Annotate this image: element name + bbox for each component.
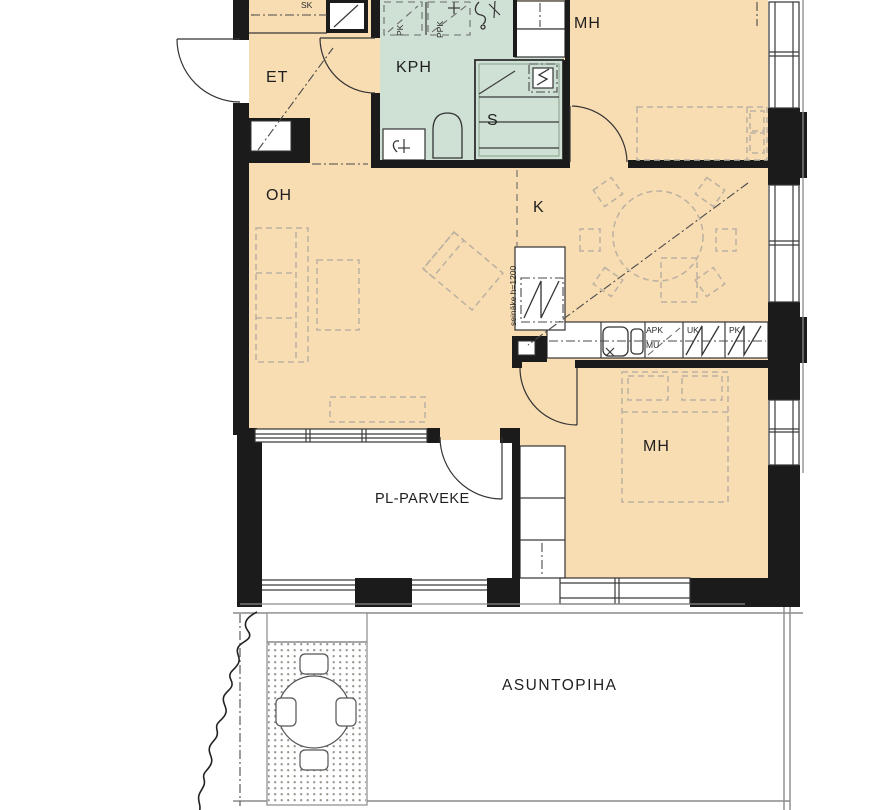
bedroom2-side-window	[769, 400, 799, 465]
room-label-living: OH	[266, 187, 292, 204]
patio-chair-south	[300, 750, 328, 770]
patio-chair-east	[336, 698, 356, 726]
label-partition-note: seinäke h=1200	[508, 265, 518, 326]
living-balcony-window	[255, 429, 427, 442]
floor-plan-drawing: ET KPH S MH OH K MH PL-PARVEKE ASUNTOPIH…	[0, 0, 883, 810]
room-label-bathroom: KPH	[396, 59, 432, 76]
patio-chair-north	[300, 654, 328, 674]
label-freezer-unit: PK	[729, 325, 741, 335]
niche-interior	[251, 121, 291, 151]
patio-chair-west	[276, 698, 296, 726]
room-label-yard: ASUNTOPIHA	[502, 677, 618, 694]
room-label-kitchen: K	[533, 199, 545, 216]
room-label-balcony: PL-PARVEKE	[375, 491, 470, 507]
room-label-bedroom1: MH	[574, 15, 601, 32]
partition-wall	[515, 247, 565, 330]
floor-plan-page: ET KPH S MH OH K MH PL-PARVEKE ASUNTOPIH…	[0, 0, 883, 810]
column-shaft	[518, 341, 535, 355]
room-label-entry: ET	[266, 69, 288, 86]
label-washer: PK	[395, 24, 405, 36]
label-closet-sk: SK	[301, 0, 313, 10]
label-microwave: MU	[646, 340, 659, 350]
kitchen-window	[769, 185, 799, 302]
room-label-bedroom2: MH	[643, 438, 670, 455]
bedroom2-closet	[520, 446, 565, 578]
bedroom1-window	[769, 2, 799, 108]
label-oven-unit: UK	[687, 325, 699, 335]
shaft-closet	[515, 29, 565, 57]
patio	[267, 613, 367, 805]
label-dryer: PPK	[435, 21, 445, 38]
bedroom2-bottom-window	[560, 578, 690, 604]
label-dishwasher: APK	[646, 325, 663, 335]
room-label-sauna: S	[487, 112, 499, 129]
